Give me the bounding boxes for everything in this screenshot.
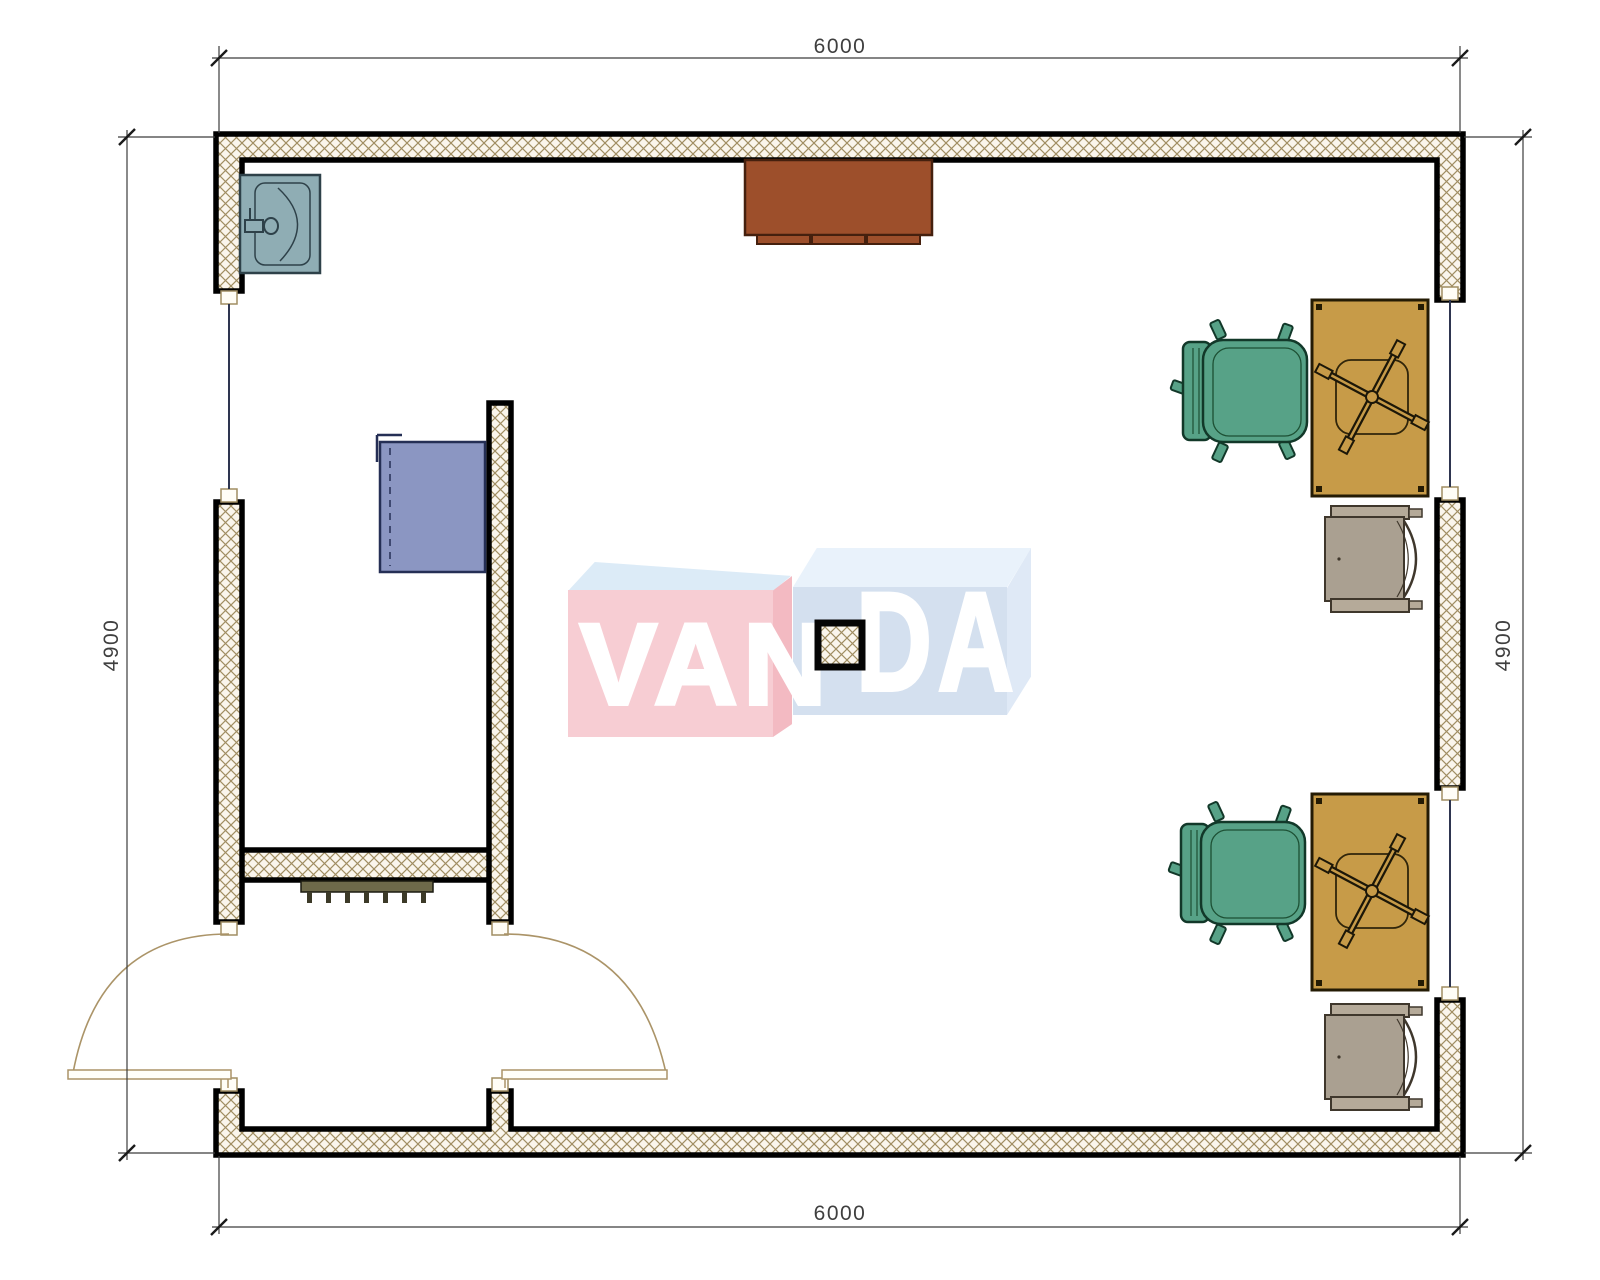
column (818, 623, 862, 667)
interior-wall-vertical (489, 403, 511, 922)
dimension-label-top: 6000 (800, 36, 880, 58)
desk-2 (1288, 794, 1456, 990)
office-chair-1 (1170, 319, 1307, 462)
printer-cabinet-2 (1325, 1004, 1422, 1110)
office-chair-2 (1168, 801, 1305, 944)
interior-wall-horizontal (239, 850, 492, 880)
outer-wall-left-segment (216, 502, 242, 922)
dimension-label-left: 4900 (101, 605, 123, 685)
wall-cabinet (377, 435, 485, 572)
door-leaf-right (502, 1070, 667, 1079)
double-door (68, 934, 667, 1088)
floor-plan-canvas (0, 0, 1600, 1280)
desk-1 (1288, 300, 1456, 496)
outer-wall-bottom (216, 1000, 1463, 1155)
radiator (301, 881, 433, 903)
floor-plan-page: { "page": { "title": "VANDA office floor… (0, 0, 1600, 1280)
counter-cabinet (745, 160, 932, 244)
outer-wall-right-segment (1437, 500, 1463, 788)
printer-cabinet-1 (1325, 506, 1422, 612)
dimension-label-bottom: 6000 (800, 1203, 880, 1225)
dimension-label-right: 4900 (1493, 605, 1515, 685)
door-leaf-left (68, 1070, 231, 1079)
sink (240, 175, 320, 273)
